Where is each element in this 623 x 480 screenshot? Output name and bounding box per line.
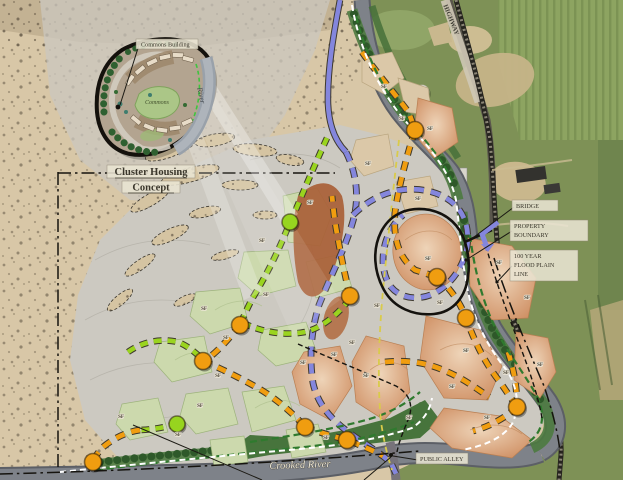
bridge-label: BRIDGE (516, 203, 539, 210)
flood-plain-label-2: FLOOD PLAIN (514, 262, 555, 269)
lot-label: SF (449, 385, 455, 390)
lot-label: SF (331, 353, 337, 358)
lot-label: SF (215, 374, 221, 379)
orange-intersection-node (339, 432, 356, 449)
lot-label: SF (463, 349, 469, 354)
lot-label: SF (300, 361, 306, 366)
lot-label: SF (349, 341, 355, 346)
lot-label: SF (223, 336, 229, 341)
lot-label: SF (175, 433, 181, 438)
public-alley-label: PUBLIC ALLEY (420, 456, 464, 463)
map-canvas: SFSFSFSFSFSFSFSFSFSFSFSFSFSFSFSFSFSFSFSF… (0, 0, 623, 480)
lot-label: SF (406, 416, 412, 421)
lot-label: SF (399, 117, 405, 122)
lot-label: SF (425, 257, 431, 262)
public-alley-callout: PUBLIC ALLEY (416, 453, 468, 464)
orange-intersection-node (458, 310, 475, 327)
commons-building-label: Commons Building (141, 42, 190, 49)
flood-plain-label-1: 100 YEAR (514, 253, 542, 260)
lot-label: SF (263, 293, 269, 298)
lime-intersection-node (282, 214, 298, 230)
lime-intersection-node (169, 416, 185, 432)
property-boundary-label-1: PROPERTY (514, 223, 546, 230)
orange-intersection-node (297, 419, 314, 436)
lot-label: SF (427, 127, 433, 132)
bridge-callout: BRIDGE (512, 200, 558, 211)
lot-label: SF (496, 261, 502, 266)
flood-plain-label-3: LINE (514, 271, 528, 278)
property-boundary-callout: PROPERTY BOUNDARY (510, 220, 588, 241)
master-plan-map: SFSFSFSFSFSFSFSFSFSFSFSFSFSFSFSFSFSFSFSF… (0, 0, 623, 480)
inset-title-line1: Cluster Housing (114, 167, 188, 178)
lot-label: SF (197, 404, 203, 409)
lot-label: SF (118, 415, 124, 420)
lot-label: SF (503, 371, 509, 376)
property-boundary-label-2: BOUNDARY (514, 232, 549, 239)
lot-label: SF (363, 374, 369, 379)
flood-plain-callout: 100 YEAR FLOOD PLAIN LINE (510, 250, 578, 281)
lot-label: SF (437, 301, 443, 306)
inset-commons-label: Commons (145, 100, 170, 106)
lot-label: SF (381, 85, 387, 90)
orange-intersection-node (509, 399, 526, 416)
lot-label: SF (323, 436, 329, 441)
lot-label: SF (201, 307, 207, 312)
crooked-river-label: Crooked River (269, 459, 331, 472)
lot-label: SF (484, 416, 490, 421)
inset-title-line2: Concept (132, 183, 170, 194)
lot-label: SF (259, 239, 265, 244)
orange-intersection-node (429, 269, 446, 286)
lot-label: SF (524, 296, 530, 301)
orange-intersection-node (342, 288, 359, 305)
lot-label: SF (415, 197, 421, 202)
lot-label: SF (307, 201, 313, 206)
lot-label: SF (374, 304, 380, 309)
orange-intersection-node (85, 454, 102, 471)
orange-intersection-node (195, 353, 212, 370)
lot-label: SF (537, 363, 543, 368)
orange-intersection-node (232, 317, 249, 334)
lot-label: SF (365, 162, 371, 167)
orange-intersection-node (407, 122, 424, 139)
commons-building-marker (116, 105, 121, 110)
commons-building-callout: Commons Building (136, 39, 198, 49)
